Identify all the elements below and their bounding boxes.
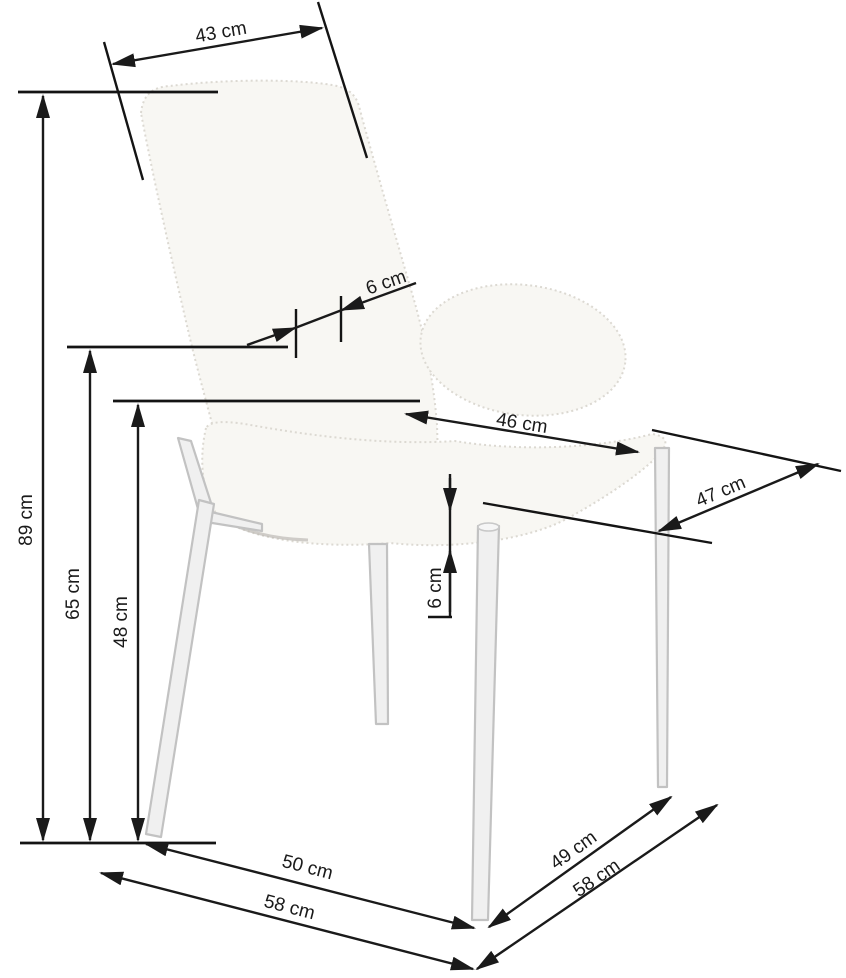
dim-label-seat-thickness: 6 cm [425, 567, 446, 608]
dim-label-armrest-height: 65 cm [63, 568, 84, 620]
chair-illustration [141, 81, 669, 920]
dim-overall-depth: 58 cm [477, 805, 717, 969]
arrow-line [101, 873, 473, 969]
chair-dimension-diagram: 43 cm 89 cm 65 cm 48 cm 6 cm [0, 0, 846, 978]
dim-label-seat-height: 48 cm [111, 596, 132, 648]
dim-side-base-depth: 49 cm [489, 797, 671, 927]
arrow-line [489, 797, 671, 927]
rear-left-leg [369, 544, 388, 724]
front-right-leg-cap [478, 523, 499, 531]
dim-label-total-height: 89 cm [16, 494, 37, 546]
chair-armrest [413, 273, 633, 427]
diagram-canvas: 43 cm 89 cm 65 cm 48 cm 6 cm [0, 0, 846, 978]
front-right-leg [472, 526, 499, 920]
front-left-leg [146, 500, 214, 837]
ext-line [652, 430, 841, 471]
dim-label-overall-width: 58 cm [262, 891, 317, 924]
dim-overall-width: 58 cm [101, 873, 473, 969]
back-right-leg [655, 448, 669, 787]
